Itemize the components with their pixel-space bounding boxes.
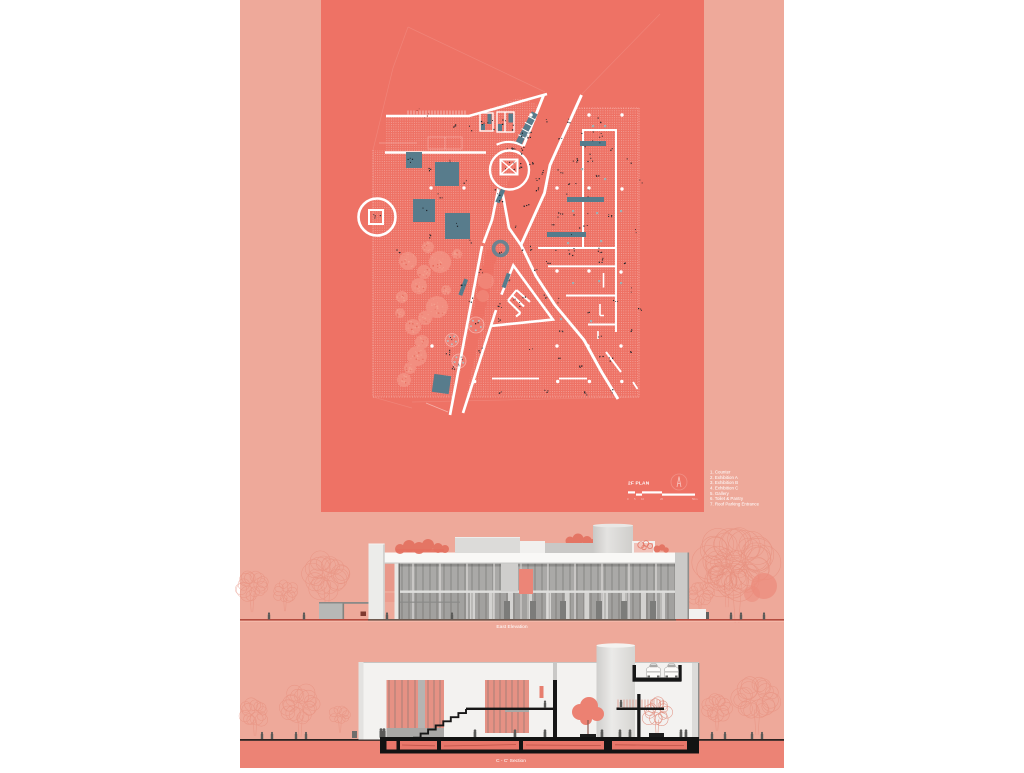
svg-text:4. Exhibition C: 4. Exhibition C (710, 486, 738, 491)
svg-text:East Elevation: East Elevation (496, 624, 528, 630)
svg-text:10: 10 (641, 497, 645, 501)
svg-text:7. Roof Parking Entrance: 7. Roof Parking Entrance (710, 502, 760, 507)
svg-text:2F PLAN: 2F PLAN (628, 481, 650, 487)
svg-text:C - C' Section: C - C' Section (496, 758, 526, 764)
svg-text:6. Toilet & Pantry: 6. Toilet & Pantry (710, 496, 744, 501)
svg-text:1. Counter: 1. Counter (710, 470, 731, 475)
svg-text:5. Gallery: 5. Gallery (710, 491, 730, 496)
svg-text:50m: 50m (692, 497, 698, 501)
svg-text:20: 20 (660, 497, 664, 501)
svg-text:3. Exhibition B: 3. Exhibition B (710, 480, 738, 485)
svg-text:2. Exhibition A: 2. Exhibition A (710, 475, 738, 480)
